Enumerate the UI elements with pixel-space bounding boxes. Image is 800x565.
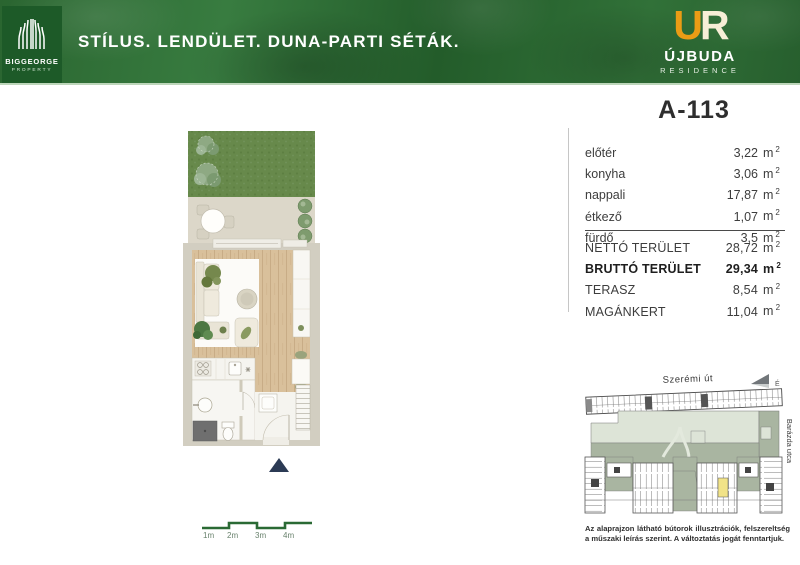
biggeorge-building-icon xyxy=(14,15,50,53)
table-row: étkező 1,07 m2 xyxy=(585,204,785,225)
disclaimer-text: Az alaprajzon látható bútorok illusztrác… xyxy=(585,524,790,544)
terrace-plants xyxy=(298,199,312,243)
area-unit: m2 xyxy=(758,204,785,225)
total-area: 28,72 xyxy=(712,240,758,257)
monogram-letter-r: R xyxy=(700,2,727,48)
table-row: TERASZ 8,54 m2 xyxy=(585,278,785,299)
area-unit: m2 xyxy=(758,278,785,299)
table-row: MAGÁNKERT 11,04 m2 xyxy=(585,299,785,320)
highlighted-unit xyxy=(718,478,728,497)
wardrobe xyxy=(293,250,310,337)
scale-bar: 1m 2m 3m 4m xyxy=(201,513,315,541)
street-label-top: Szerémi út xyxy=(663,373,714,386)
table-row: előtér 3,22 m2 xyxy=(585,141,785,162)
total-area: 11,04 xyxy=(712,304,758,321)
brand-subtitle: PROPERTY xyxy=(12,68,53,73)
total-name: TERASZ xyxy=(585,282,712,299)
area-unit: m2 xyxy=(758,257,785,278)
total-area: 29,34 xyxy=(712,261,758,278)
biggeorge-logo: BIGGEORGE PROPERTY xyxy=(2,6,62,83)
room-name: étkező xyxy=(585,209,712,226)
header: BIGGEORGE PROPERTY STÍLUS. LENDÜLET. DUN… xyxy=(0,0,800,85)
bathroom xyxy=(192,380,255,441)
room-name: konyha xyxy=(585,166,712,183)
terrace-table xyxy=(201,209,225,233)
area-unit: m2 xyxy=(758,236,785,257)
table-row: konyha 3,06 m2 xyxy=(585,162,785,183)
totals-table: NETTÓ TERÜLET 28,72 m2 BRUTTÓ TERÜLET 29… xyxy=(585,230,785,321)
entrance-marker-icon xyxy=(269,458,289,472)
scale-label: 2m xyxy=(227,531,238,540)
north-building-strip xyxy=(586,389,783,415)
south-buildings xyxy=(585,457,782,513)
total-name: NETTÓ TERÜLET xyxy=(585,240,712,257)
room-name: előtér xyxy=(585,145,712,162)
table-row: BRUTTÓ TERÜLET 29,34 m2 xyxy=(585,257,785,278)
residence-subtitle: RESIDENCE xyxy=(640,66,760,75)
compass-label: É xyxy=(775,379,780,388)
unit-title: A-113 xyxy=(585,96,800,125)
room-name: nappali xyxy=(585,187,712,204)
scale-label: 4m xyxy=(283,531,294,540)
entry-hall xyxy=(255,385,310,445)
room-area: 1,07 xyxy=(712,209,758,226)
room-area: 3,06 xyxy=(712,166,758,183)
room-area: 3,22 xyxy=(712,145,758,162)
monogram-letter-u: U xyxy=(673,2,700,48)
floor-plan-image xyxy=(183,129,323,474)
kitchen-counter xyxy=(192,358,255,380)
area-unit: m2 xyxy=(758,141,785,162)
room-area: 17,87 xyxy=(712,187,758,204)
vertical-divider xyxy=(568,128,569,312)
table-row: NETTÓ TERÜLET 28,72 m2 xyxy=(585,236,785,257)
total-name: BRUTTÓ TERÜLET xyxy=(585,261,712,278)
terrace-area xyxy=(188,197,315,243)
table-row: nappali 17,87 m2 xyxy=(585,183,785,204)
total-name: MAGÁNKERT xyxy=(585,304,712,321)
header-tagline: STÍLUS. LENDÜLET. DUNA-PARTI SÉTÁK. xyxy=(78,32,460,52)
scale-label: 3m xyxy=(255,531,266,540)
area-unit: m2 xyxy=(758,183,785,204)
page: BIGGEORGE PROPERTY STÍLUS. LENDÜLET. DUN… xyxy=(0,0,800,565)
scale-label: 1m xyxy=(203,531,214,540)
brand-name: BIGGEORGE xyxy=(5,57,58,66)
area-unit: m2 xyxy=(758,299,785,320)
north-arrow-icon: É xyxy=(751,374,780,388)
site-map: É Szerémi út Barázda utca xyxy=(583,371,793,519)
area-unit: m2 xyxy=(758,162,785,183)
street-label-right: Barázda utca xyxy=(785,419,793,464)
living-room-furniture xyxy=(193,259,259,347)
ur-monogram-logo: UR xyxy=(655,2,745,48)
garden-area xyxy=(188,131,315,197)
total-area: 8,54 xyxy=(712,282,758,299)
residence-name: ÚJBUDA xyxy=(640,48,760,65)
